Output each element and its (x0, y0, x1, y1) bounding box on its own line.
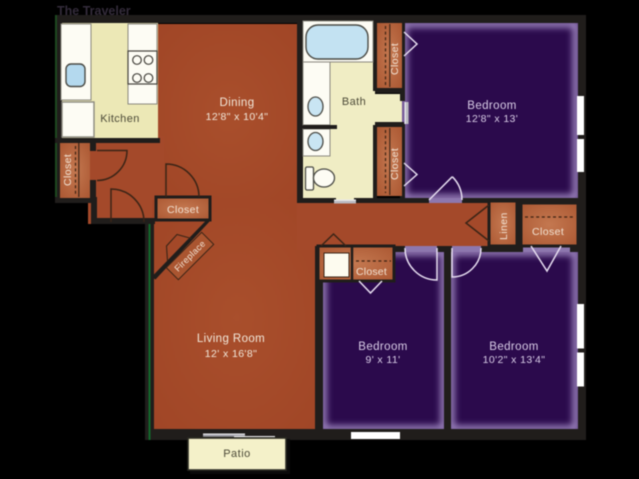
svg-text:12'8" x 10'4": 12'8" x 10'4" (206, 111, 269, 123)
svg-text:Closet: Closet (389, 148, 401, 180)
svg-text:Linen: Linen (498, 212, 510, 240)
svg-text:Bedroom: Bedroom (489, 341, 538, 353)
svg-text:Kitchen: Kitchen (100, 113, 140, 125)
svg-text:Bath: Bath (342, 96, 366, 108)
svg-text:Closet: Closet (62, 154, 74, 186)
svg-text:Closet: Closet (389, 43, 401, 75)
svg-text:Bedroom: Bedroom (467, 100, 516, 112)
svg-text:10'2" x 13'4": 10'2" x 13'4" (483, 354, 546, 366)
svg-text:Living Room: Living Room (197, 333, 265, 345)
svg-text:Bedroom: Bedroom (358, 341, 407, 353)
svg-text:Dining: Dining (219, 97, 254, 109)
svg-text:Patio: Patio (223, 448, 251, 460)
svg-text:Closet: Closet (356, 266, 387, 278)
svg-text:Closet: Closet (532, 226, 564, 238)
svg-text:9' x 11': 9' x 11' (365, 354, 400, 366)
svg-text:Closet: Closet (167, 204, 199, 216)
svg-text:12' x 16'8": 12' x 16'8" (205, 348, 257, 360)
svg-text:12'8" x 13': 12'8" x 13' (466, 113, 518, 125)
